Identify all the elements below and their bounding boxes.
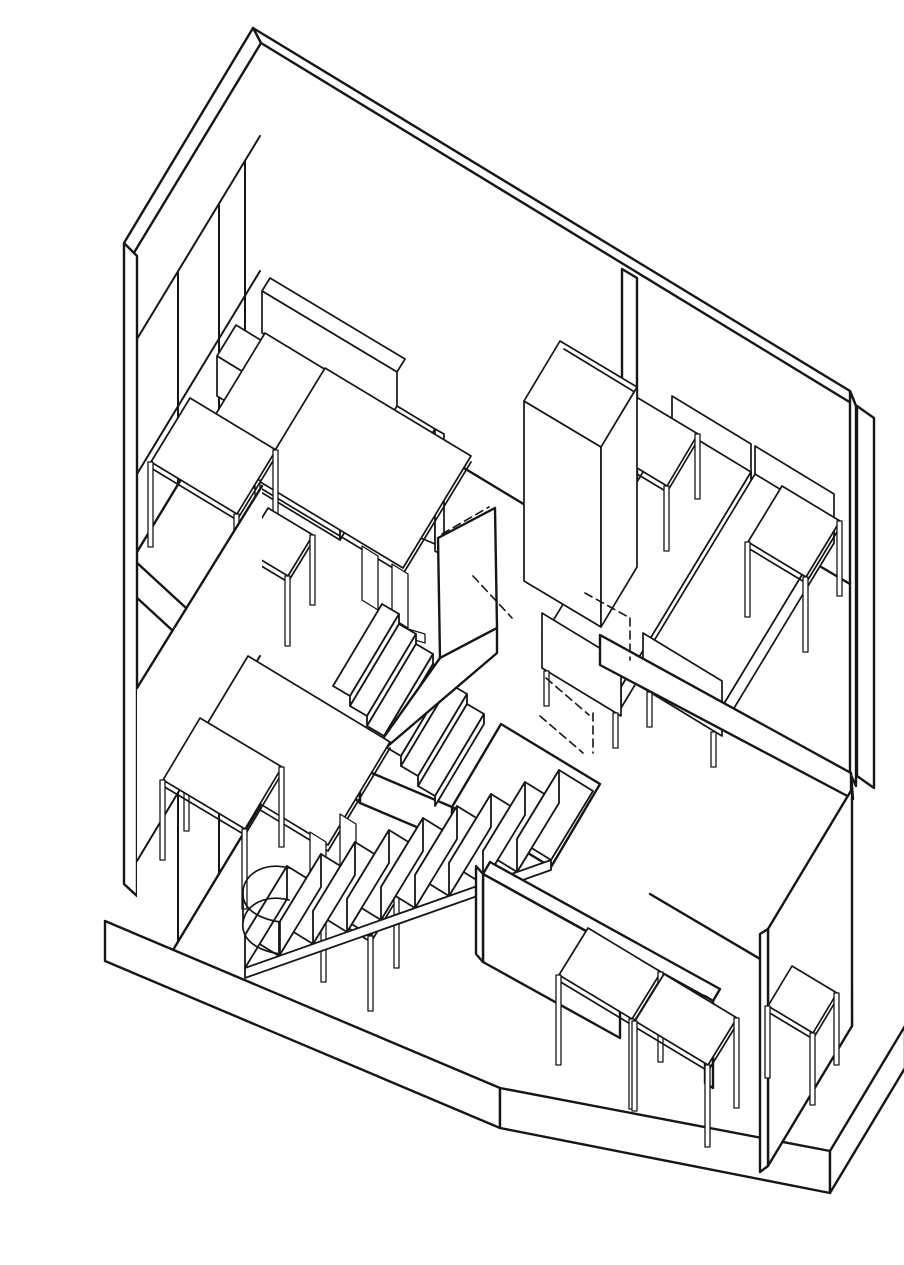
slab-east-band <box>830 1026 904 1193</box>
wardrobe <box>524 341 637 627</box>
bed-leg <box>544 671 549 706</box>
back-wall-right-cap <box>850 391 856 786</box>
right-wall-outer-band <box>857 406 874 788</box>
bed-leg <box>711 732 716 767</box>
door-wall-end-cap <box>476 866 483 962</box>
left-wall-cut-strip <box>124 243 137 896</box>
bed-leg <box>613 713 618 748</box>
table-pedestal-leg <box>362 546 378 610</box>
bed-leg <box>647 692 652 727</box>
ink-layer <box>105 28 904 1193</box>
axonometric-cutaway-drawing: Axonometric cutaway line drawing of a tw… <box>40 16 904 1249</box>
